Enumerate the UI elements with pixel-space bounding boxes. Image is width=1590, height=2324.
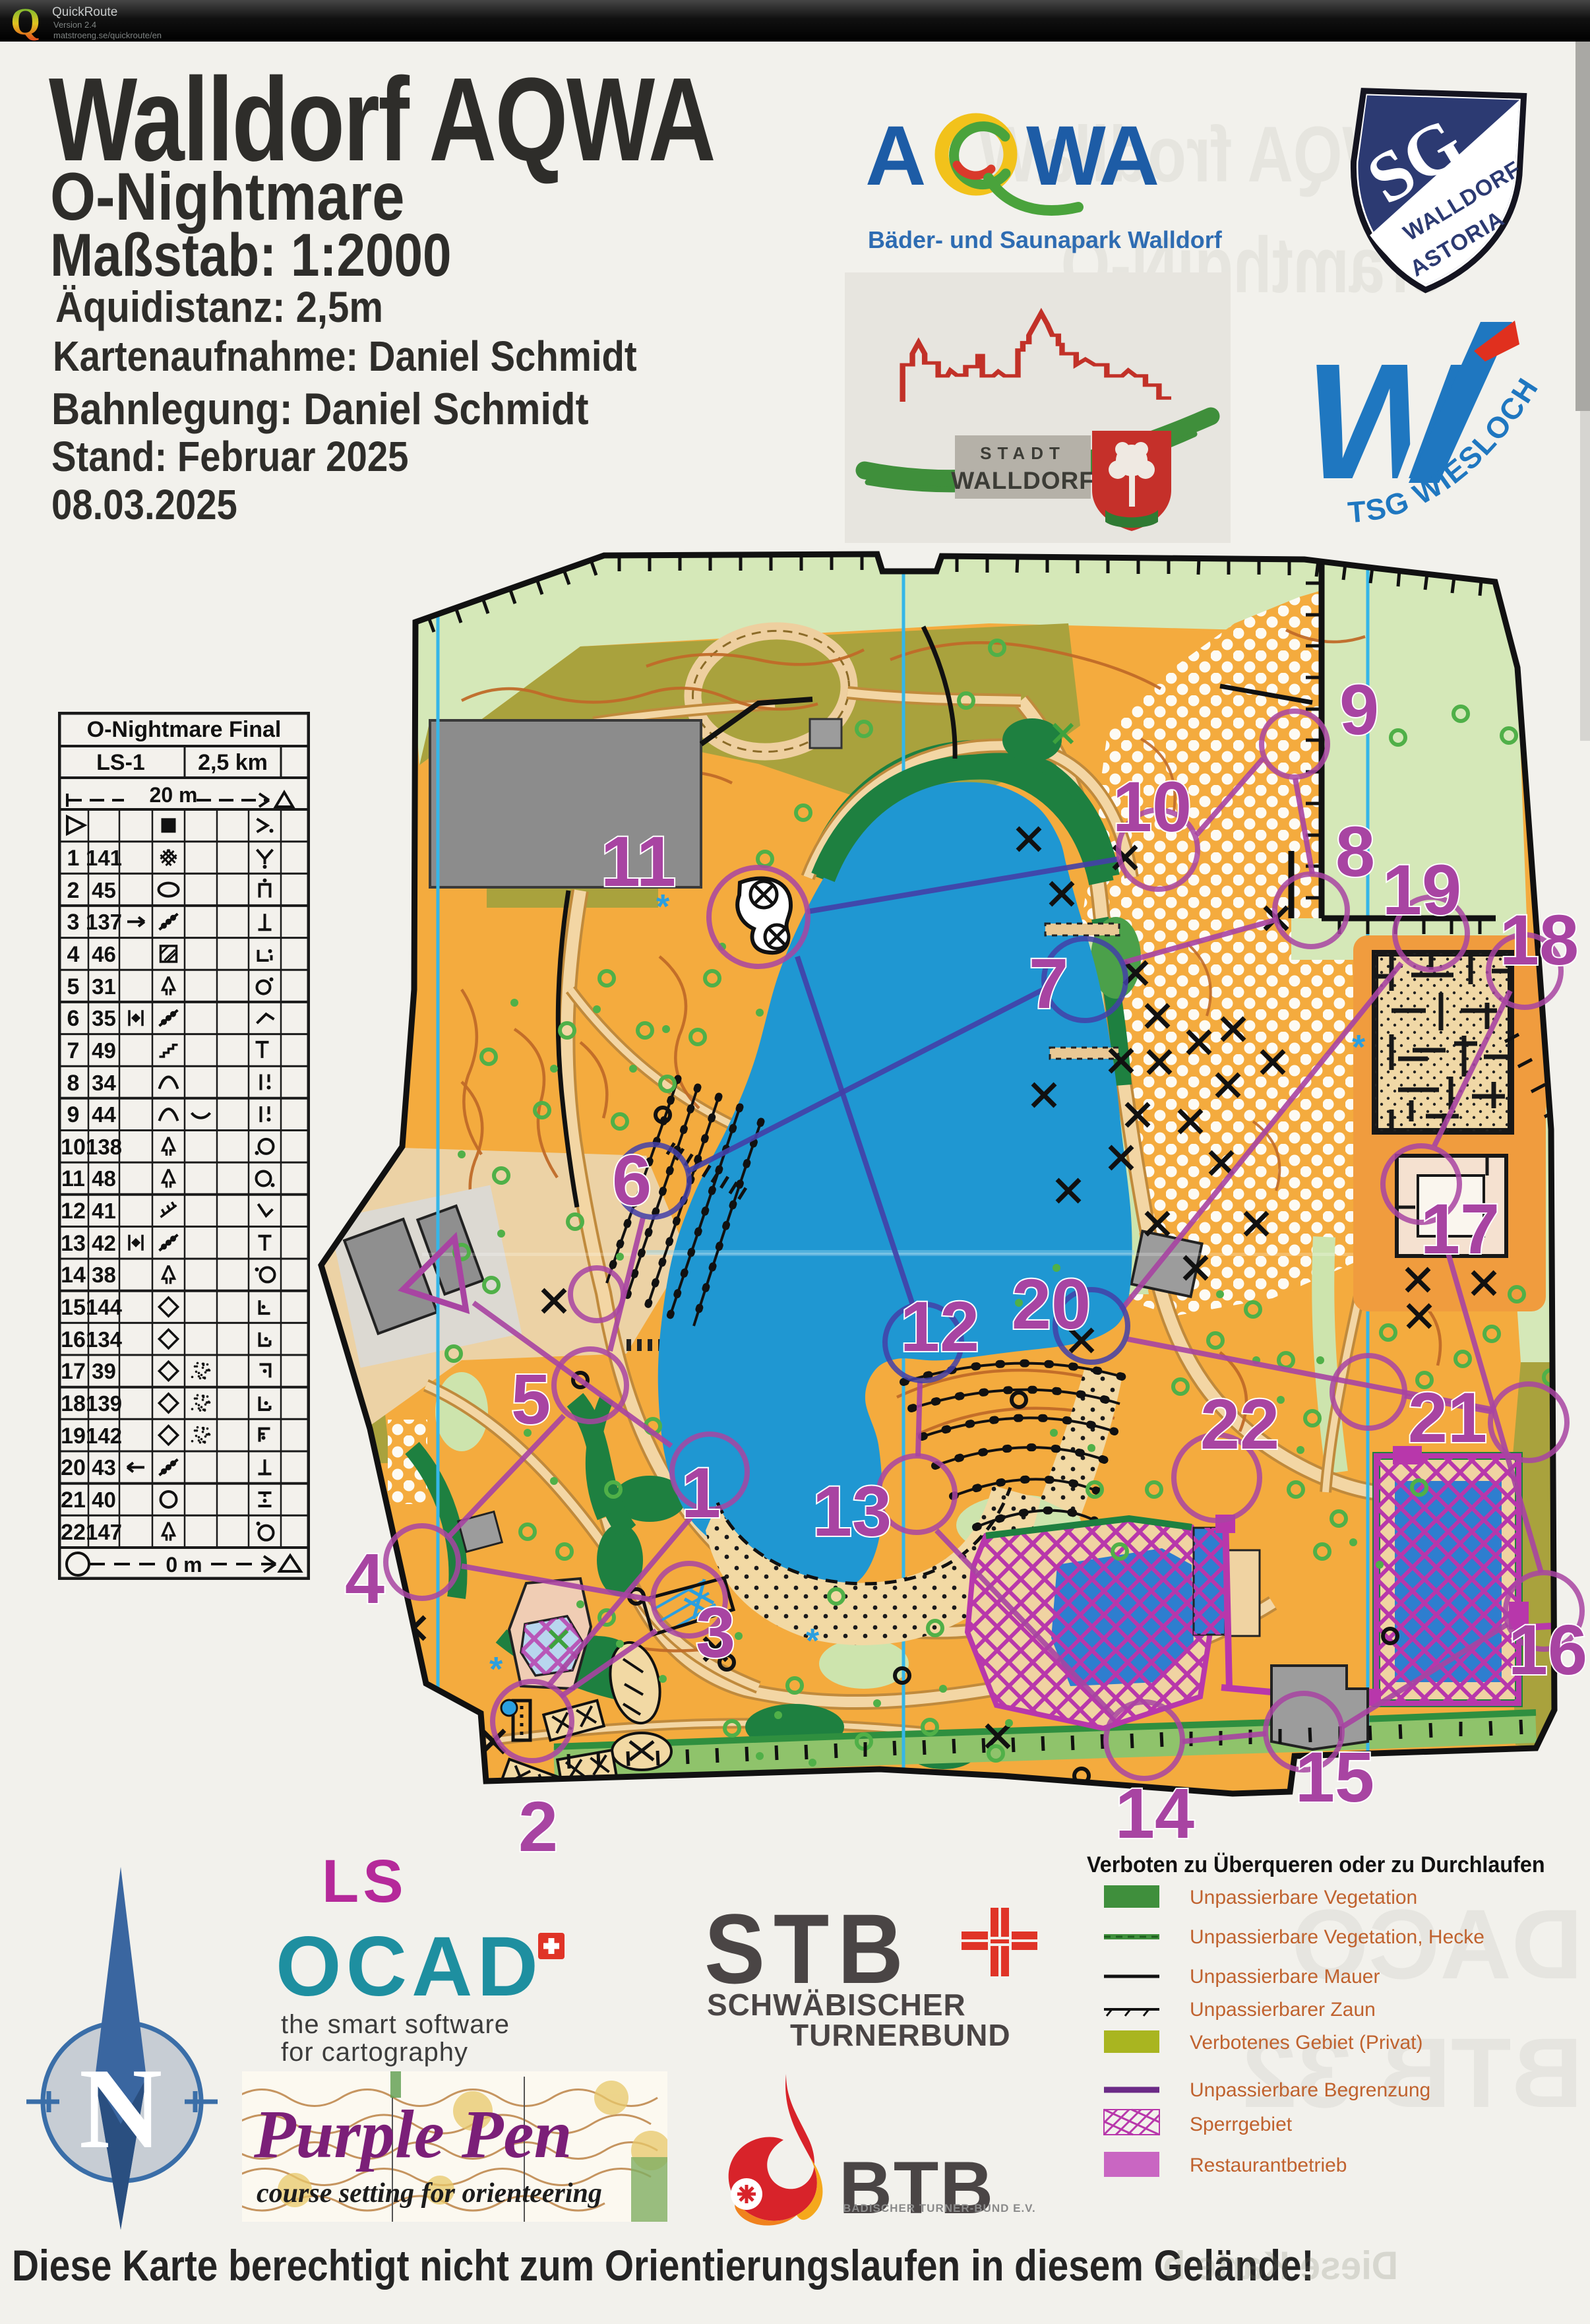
svg-text:2: 2 bbox=[518, 1786, 558, 1866]
svg-text:Sperrgebiet: Sperrgebiet bbox=[1190, 2114, 1293, 2135]
svg-text:16: 16 bbox=[1508, 1610, 1587, 1689]
svg-text:17: 17 bbox=[1421, 1189, 1500, 1269]
svg-text:1: 1 bbox=[681, 1453, 721, 1532]
svg-text:6: 6 bbox=[612, 1140, 652, 1220]
svg-text:Unpassierbarer Zaun: Unpassierbarer Zaun bbox=[1190, 1999, 1376, 2021]
svg-text:*: * bbox=[806, 1622, 820, 1660]
svg-text:Verbotenes Gebiet (Privat): Verbotenes Gebiet (Privat) bbox=[1190, 2032, 1423, 2054]
svg-text:12: 12 bbox=[900, 1286, 979, 1366]
svg-text:Unpassierbare Begrenzung: Unpassierbare Begrenzung bbox=[1190, 2079, 1430, 2101]
svg-text:14: 14 bbox=[1115, 1773, 1194, 1853]
svg-text:11: 11 bbox=[601, 821, 676, 901]
svg-text:Unpassierbare Vegetation: Unpassierbare Vegetation bbox=[1190, 1887, 1417, 1908]
svg-text:Unpassierbare Mauer: Unpassierbare Mauer bbox=[1190, 1966, 1380, 1988]
svg-text:22: 22 bbox=[1200, 1384, 1279, 1464]
svg-text:Purple Pen: Purple Pen bbox=[253, 2096, 572, 2172]
svg-text:13: 13 bbox=[812, 1471, 892, 1551]
svg-text:*: * bbox=[489, 1650, 503, 1689]
svg-text:Unpassierbare Vegetation, Heck: Unpassierbare Vegetation, Hecke bbox=[1190, 1926, 1484, 1948]
svg-text:3: 3 bbox=[696, 1592, 735, 1672]
svg-text:10: 10 bbox=[1113, 767, 1192, 846]
svg-text:18: 18 bbox=[1500, 900, 1579, 980]
svg-text:19: 19 bbox=[1382, 850, 1461, 929]
svg-text:21: 21 bbox=[1408, 1377, 1487, 1457]
svg-text:7: 7 bbox=[1029, 943, 1068, 1023]
svg-text:*: * bbox=[1352, 1028, 1366, 1067]
svg-text:4: 4 bbox=[345, 1538, 384, 1618]
svg-text:5: 5 bbox=[511, 1359, 551, 1439]
svg-text:N: N bbox=[79, 2044, 162, 2172]
svg-text:9: 9 bbox=[1339, 670, 1379, 749]
svg-text:20: 20 bbox=[1012, 1264, 1091, 1344]
svg-text:8: 8 bbox=[1335, 811, 1375, 891]
svg-text:Restaurantbetrieb: Restaurantbetrieb bbox=[1190, 2154, 1347, 2176]
svg-text:15: 15 bbox=[1295, 1737, 1374, 1817]
svg-text:course setting for orienteerin: course setting for orienteering bbox=[257, 2178, 602, 2209]
